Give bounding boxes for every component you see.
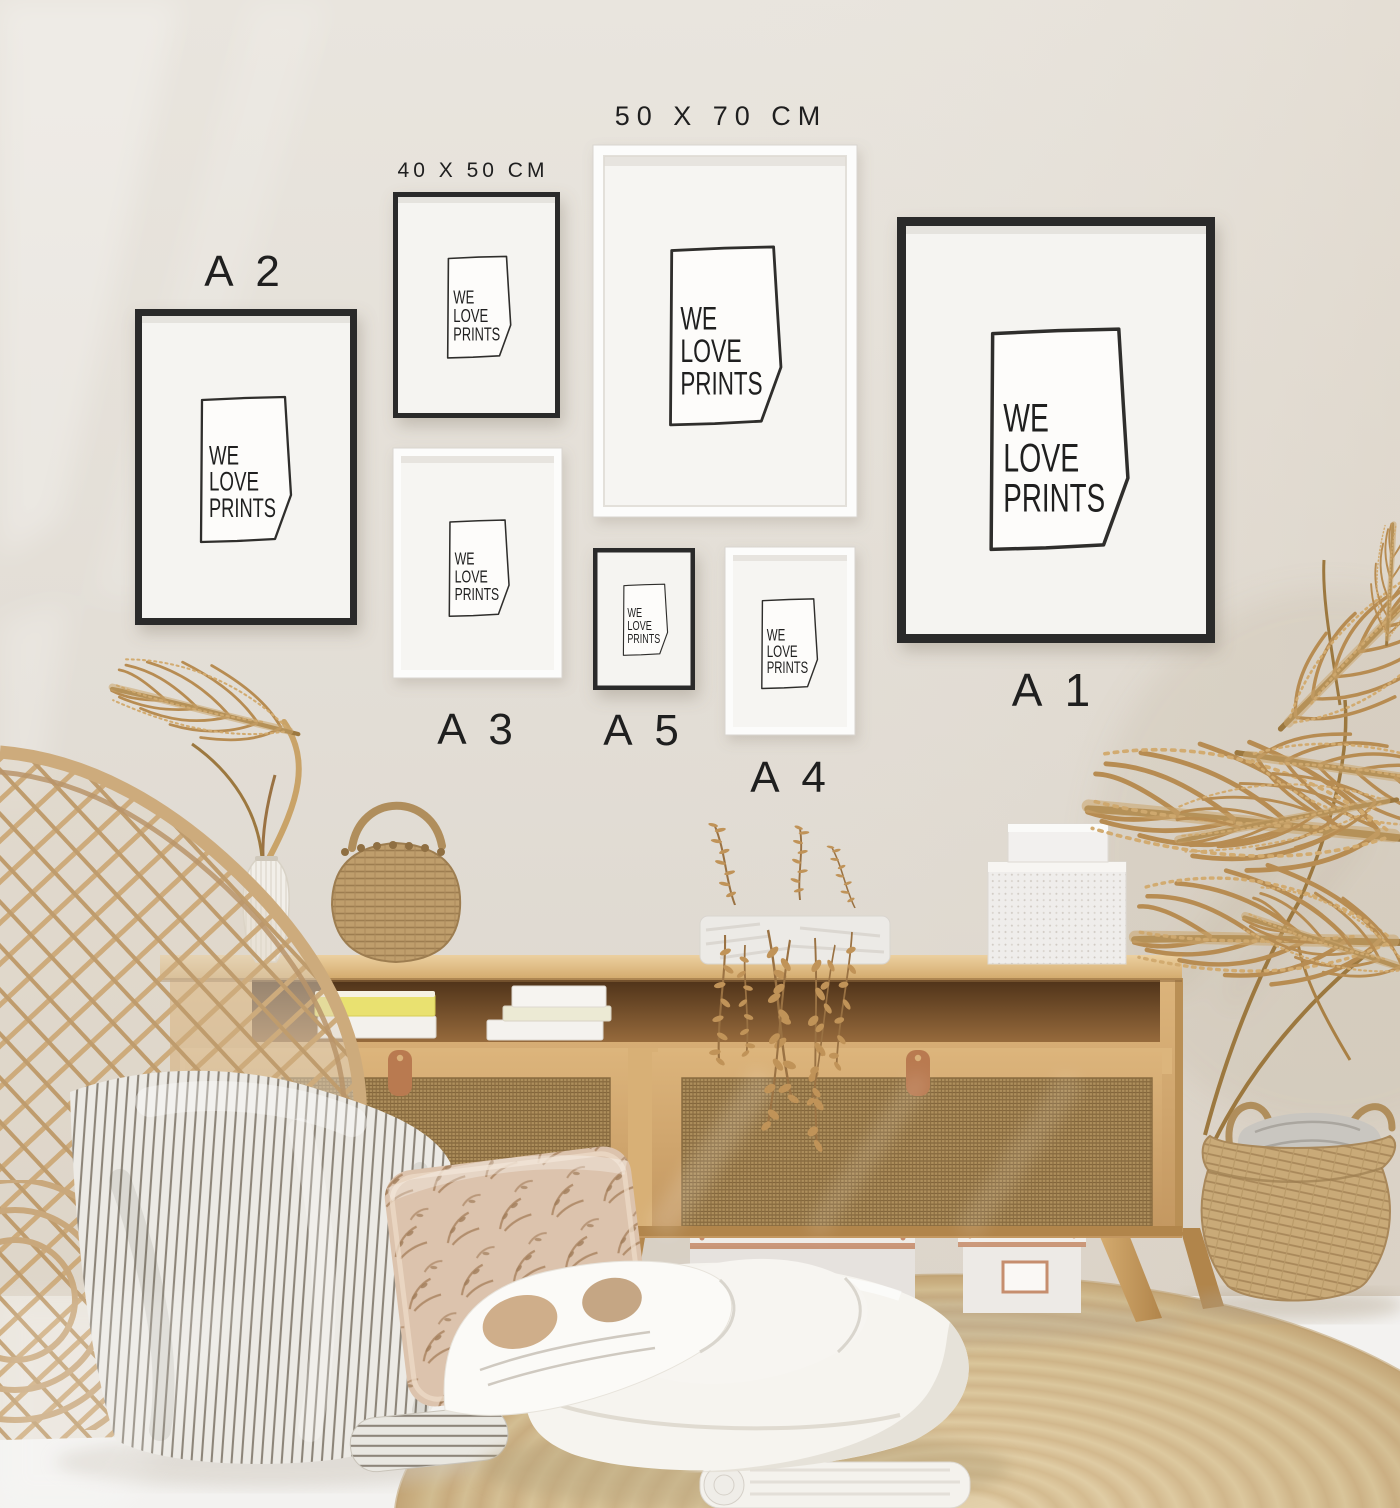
frame-a3 — [393, 448, 562, 678]
size-label-50x70: 50 X 70 CM — [615, 101, 828, 131]
logo-print-a2 — [201, 397, 291, 542]
frame-a3-inner-shadow — [401, 456, 554, 463]
frame-50x70-inner-shadow — [604, 156, 846, 166]
frame-a1 — [897, 217, 1215, 643]
frame-a4 — [725, 547, 855, 735]
scene-room-mockup: WE LOVE PRINTS — [0, 0, 1400, 1508]
frame-a2 — [135, 309, 357, 625]
frame-a4-inner-shadow — [733, 555, 847, 561]
storage-box-label — [958, 1226, 1086, 1313]
size-label-a3: A 3 — [437, 705, 519, 754]
logo-print-40x50 — [448, 256, 511, 358]
logo-print-a4 — [762, 599, 818, 689]
size-label-40x50: 40 X 50 CM — [398, 159, 549, 182]
size-label-a4: A 4 — [750, 753, 832, 802]
drawer-pull-left — [388, 1050, 412, 1096]
patterned-storage-boxes — [988, 824, 1126, 964]
size-label-a2: A 2 — [204, 247, 286, 296]
frame-a1-inner-shadow — [906, 226, 1206, 234]
sideboard-side-face — [1175, 978, 1183, 1232]
logo-print-a3 — [449, 520, 509, 616]
frame-40x50 — [393, 192, 560, 418]
frame-40x50-inner-shadow — [398, 197, 555, 203]
logo-print-a5 — [623, 584, 667, 655]
frame-50x70 — [593, 145, 857, 517]
size-label-a5: A 5 — [603, 706, 685, 755]
belly-basket — [1202, 1105, 1395, 1300]
logo-print-a1 — [991, 329, 1128, 549]
logo-print-50x70 — [671, 247, 781, 425]
frame-a2-inner-shadow — [142, 316, 350, 323]
frame-a5 — [593, 548, 695, 690]
size-label-a1: A 1 — [1012, 664, 1097, 716]
